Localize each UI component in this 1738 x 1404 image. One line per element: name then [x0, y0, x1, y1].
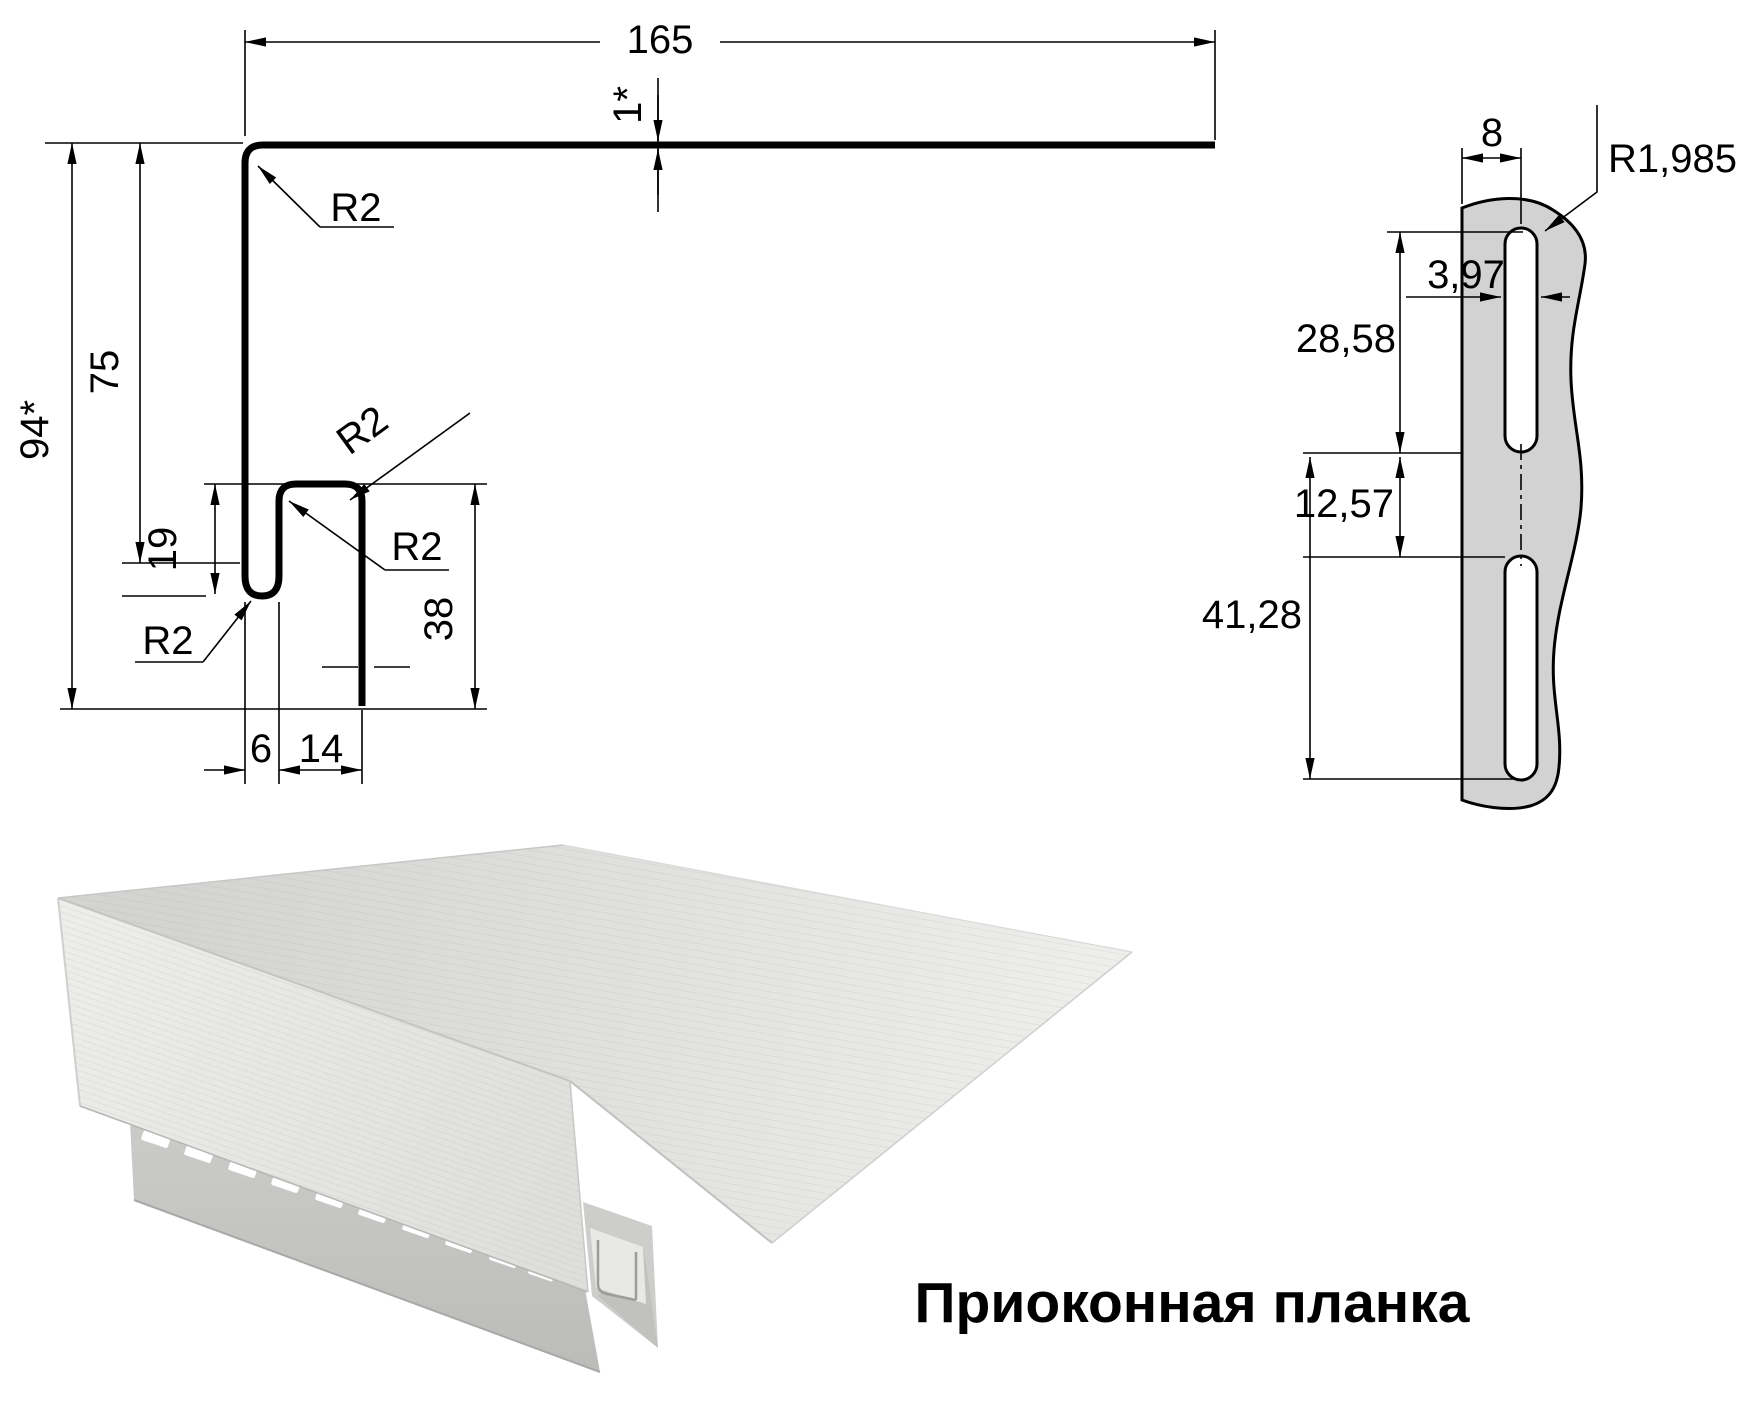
perforation-detail-view: 8 R1,985 3,97 28,58 12,57 41,28	[1202, 105, 1737, 808]
dim-step-height-38: 38	[417, 597, 461, 642]
radius-label-hook: R2	[142, 619, 193, 663]
product-title: Приоконная планка	[915, 1271, 1471, 1335]
profile-section-view: 165 1* 94* 75 19 38 6 14 R2 R2 R2 R2	[13, 18, 1215, 784]
dim-hem-offset-8: 8	[1481, 111, 1503, 155]
render-j-channel	[583, 1202, 658, 1348]
radius-leaders	[135, 166, 470, 662]
profile-outline	[245, 145, 1215, 706]
radius-label-top: R2	[330, 186, 381, 230]
dim-hook-depth-19: 19	[141, 527, 185, 572]
dim-slot-length: 28,58	[1296, 317, 1396, 361]
dim-slot-radius: R1,985	[1608, 137, 1737, 181]
dim-leg-height-75: 75	[83, 350, 127, 395]
nail-slot-lower	[1505, 556, 1537, 780]
dim-slot-width: 3,97	[1427, 253, 1505, 297]
dim-slot-gap: 12,57	[1294, 482, 1394, 526]
nail-slot-upper	[1505, 228, 1537, 452]
radius-label-step-inner: R2	[391, 525, 442, 569]
technical-drawing: 165 1* 94* 75 19 38 6 14 R2 R2 R2 R2	[0, 0, 1738, 1404]
drawing-page: 165 1* 94* 75 19 38 6 14 R2 R2 R2 R2	[0, 0, 1738, 1404]
dim-slot-pitch: 41,28	[1202, 593, 1302, 637]
dim-width-165: 165	[627, 18, 694, 62]
dim-thickness-1: 1*	[606, 86, 650, 124]
dim-total-height-94: 94*	[13, 400, 57, 460]
radius-label-step-outer: R2	[329, 398, 396, 464]
dim-bottom-width-14: 14	[299, 727, 344, 771]
dim-bottom-gap-6: 6	[250, 727, 272, 771]
